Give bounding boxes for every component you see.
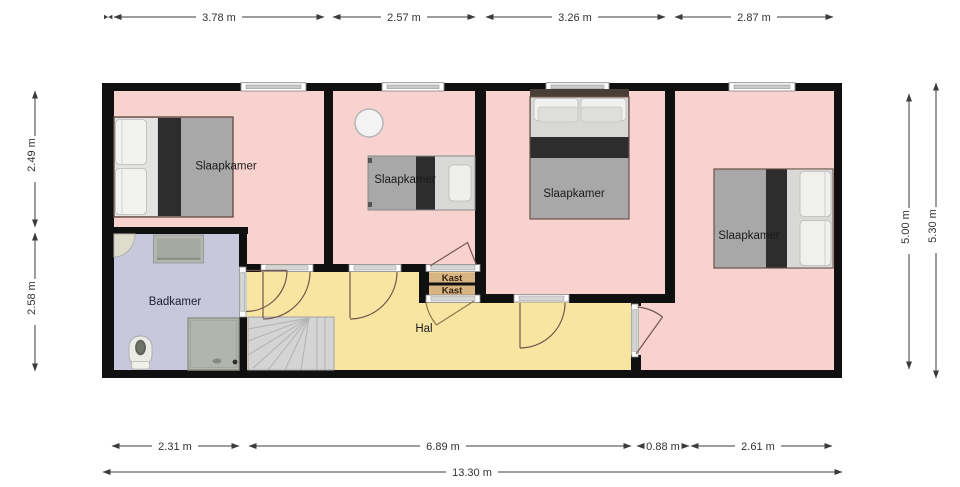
svg-text:5.00 m: 5.00 m [900,210,912,244]
svg-text:0.88 m: 0.88 m [646,441,680,453]
svg-text:2.57 m: 2.57 m [387,12,421,24]
svg-text:13.30 m: 13.30 m [452,467,492,479]
svg-text:2.87 m: 2.87 m [737,12,771,24]
svg-text:Kast: Kast [442,286,463,297]
svg-text:6.89 m: 6.89 m [426,441,460,453]
svg-text:Badkamer: Badkamer [149,296,202,308]
svg-text:Kast: Kast [442,273,463,284]
svg-text:Slaapkamer: Slaapkamer [718,230,780,242]
svg-text:Slaapkamer: Slaapkamer [543,188,605,200]
svg-text:5.30 m: 5.30 m [927,209,939,243]
svg-text:2.58 m: 2.58 m [26,281,38,315]
svg-text:Slaapkamer: Slaapkamer [195,161,257,173]
svg-text:3.78 m: 3.78 m [202,12,236,24]
svg-text:Slaapkamer: Slaapkamer [374,174,436,186]
svg-text:2.61 m: 2.61 m [741,441,775,453]
svg-text:2.49 m: 2.49 m [26,138,38,172]
svg-text:2.31 m: 2.31 m [158,441,192,453]
svg-text:Hal: Hal [415,323,432,335]
svg-text:3.26 m: 3.26 m [558,12,592,24]
